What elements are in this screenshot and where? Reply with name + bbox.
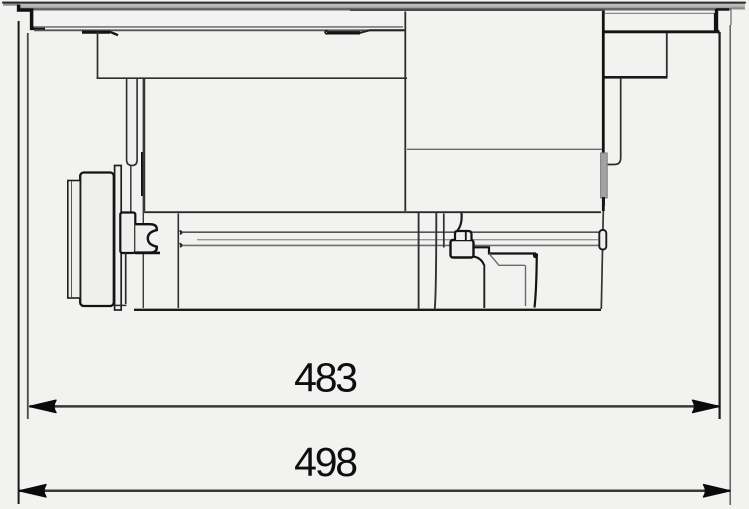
svg-text:483: 483 <box>294 354 356 400</box>
svg-text:498: 498 <box>294 439 357 485</box>
